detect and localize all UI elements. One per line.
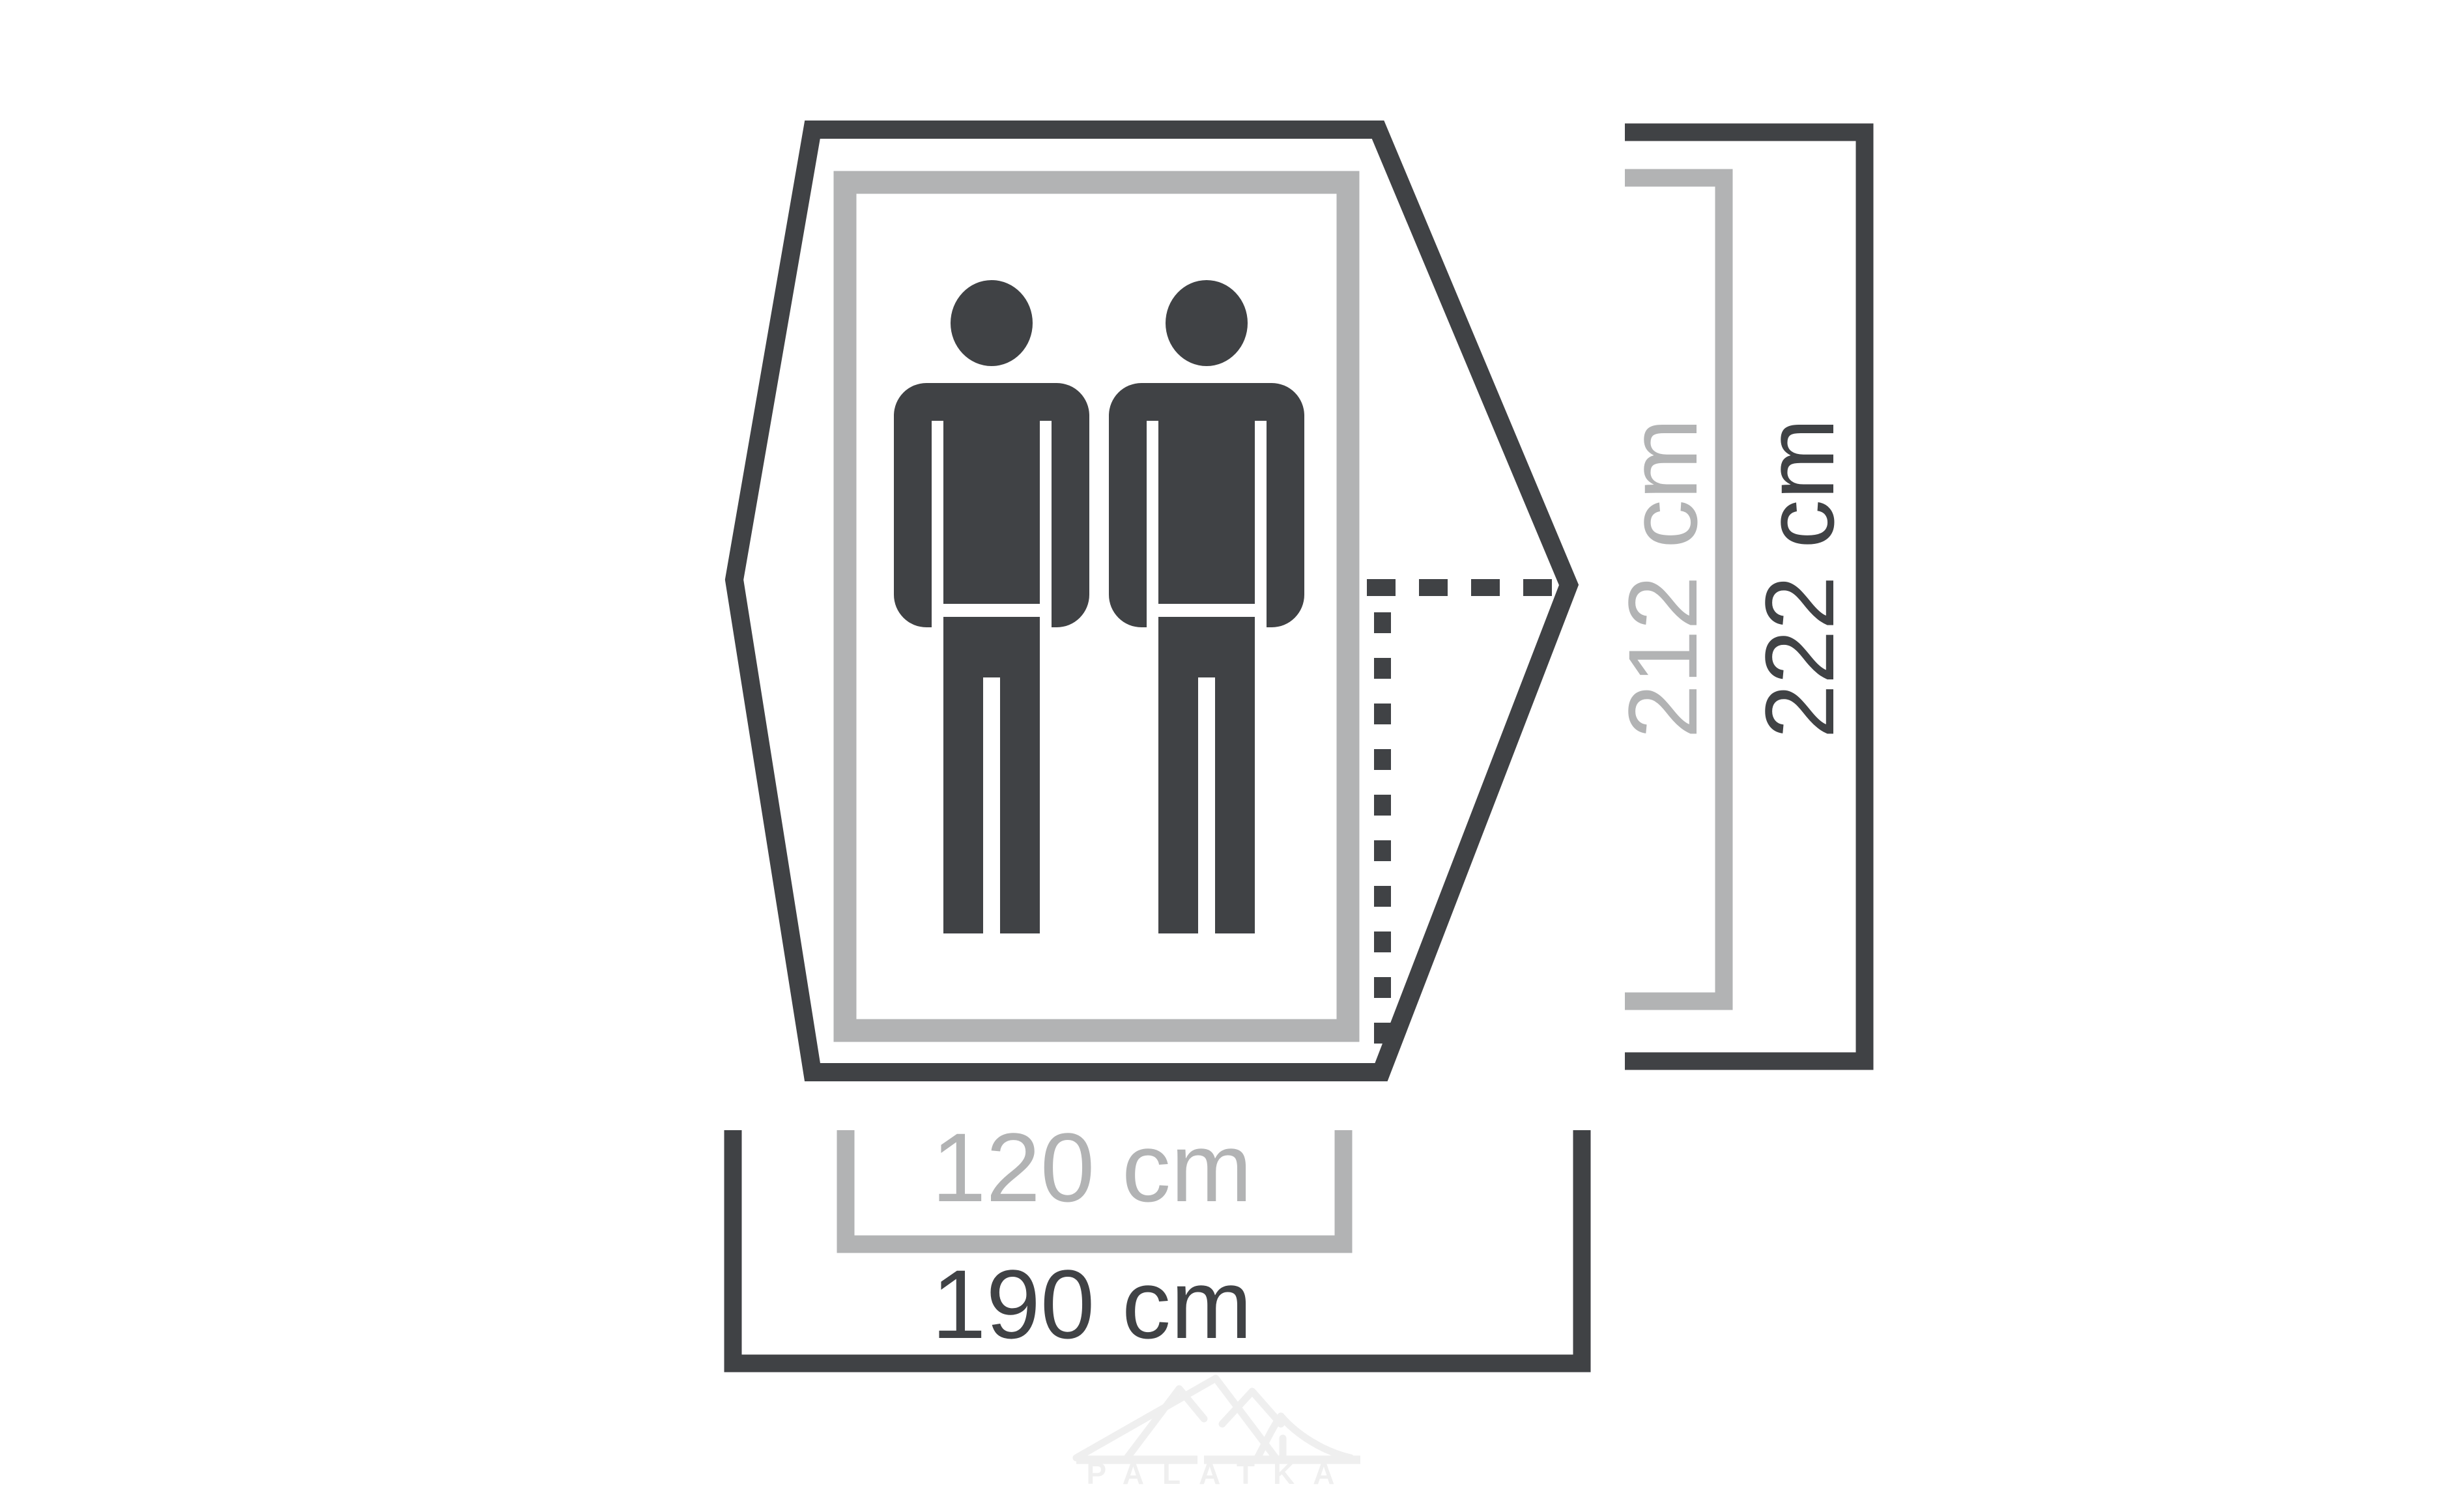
watermark: PALATKA [1076,1378,1360,1490]
mountain-logo-icon [1076,1378,1360,1460]
inner-length-label: 212 cm [1608,418,1717,739]
inner-width-label: 120 cm [932,1113,1252,1222]
outer-length-label: 222 cm [1745,418,1854,739]
outer-width-label: 190 cm [932,1249,1252,1359]
tent-floorplan-svg: 212 cm 222 cm 120 cm 190 cm PALATKA [0,0,2464,1493]
vestibule-dashed-outline [1367,588,1556,1063]
person-icon-2 [1109,280,1304,933]
person-icon-1 [894,280,1089,933]
watermark-text: PALATKA [1087,1457,1353,1490]
tent-dimension-diagram: 212 cm 222 cm 120 cm 190 cm PALATKA [0,0,2464,1493]
